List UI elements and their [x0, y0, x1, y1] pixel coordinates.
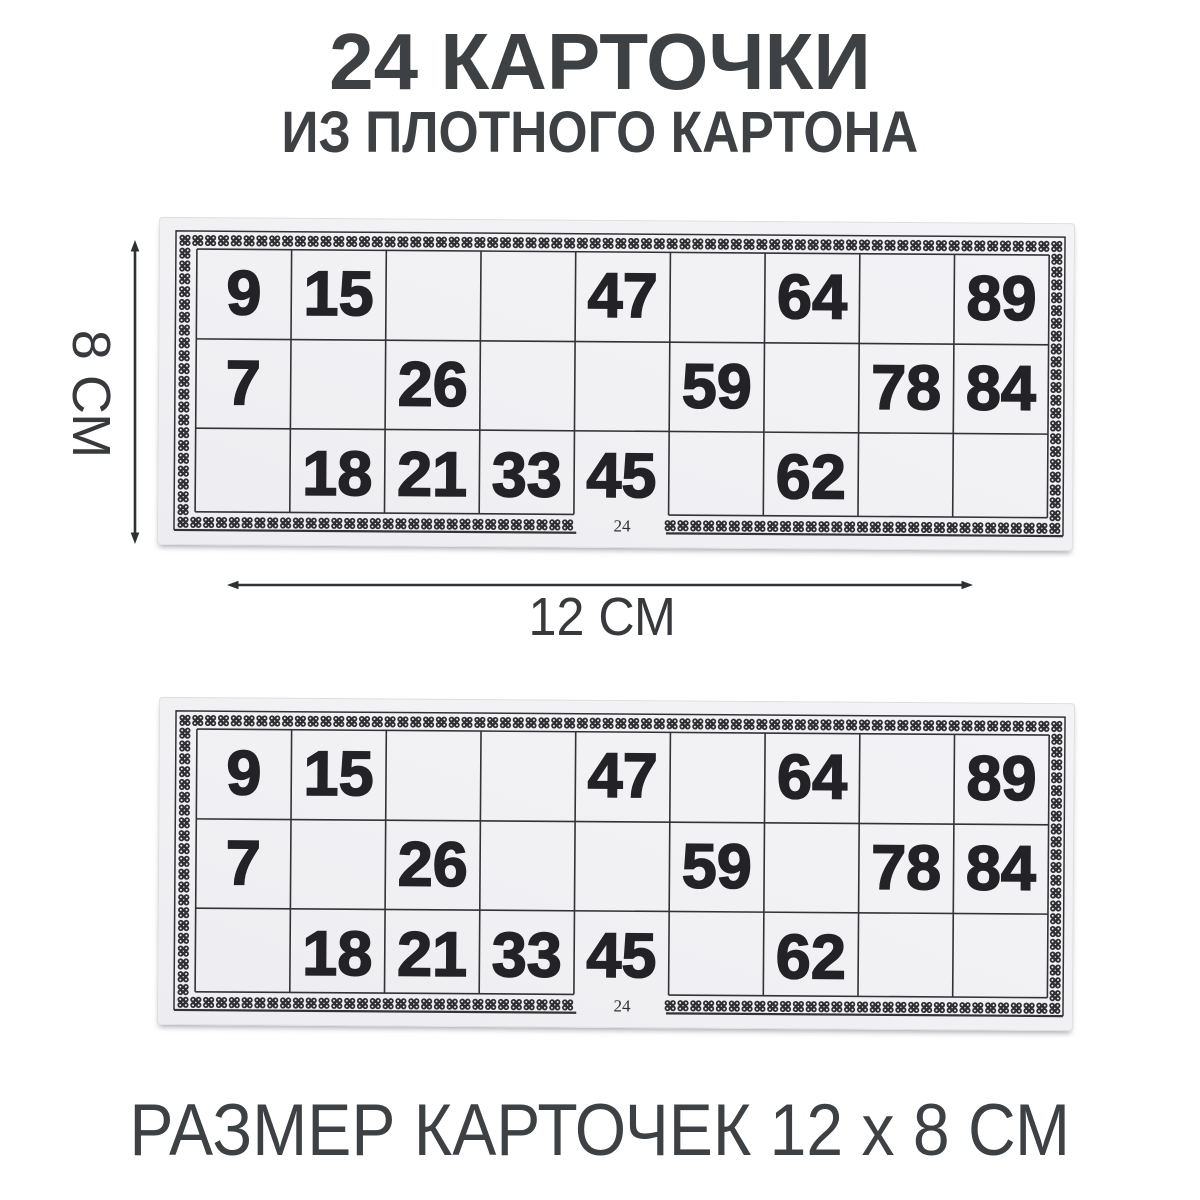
svg-text:62: 62 [776, 922, 847, 992]
svg-text:9: 9 [226, 258, 262, 328]
svg-text:47: 47 [587, 261, 658, 331]
svg-text:18: 18 [302, 919, 373, 989]
svg-text:26: 26 [398, 829, 469, 899]
svg-text:26: 26 [398, 349, 469, 419]
svg-text:24: 24 [613, 996, 631, 1015]
svg-text:62: 62 [776, 442, 847, 512]
svg-text:33: 33 [491, 920, 562, 990]
svg-text:64: 64 [777, 262, 848, 332]
svg-text:45: 45 [586, 441, 657, 511]
svg-text:24: 24 [613, 516, 631, 535]
svg-text:89: 89 [966, 743, 1037, 813]
svg-text:84: 84 [966, 353, 1037, 423]
svg-text:7: 7 [226, 828, 262, 898]
svg-text:33: 33 [491, 440, 562, 510]
svg-text:59: 59 [682, 351, 753, 421]
svg-text:59: 59 [682, 831, 753, 901]
svg-text:15: 15 [303, 739, 374, 809]
svg-text:21: 21 [397, 439, 468, 509]
svg-text:7: 7 [226, 348, 262, 418]
svg-text:78: 78 [871, 833, 942, 903]
svg-text:64: 64 [777, 742, 848, 812]
svg-text:47: 47 [587, 741, 658, 811]
svg-text:84: 84 [966, 833, 1037, 903]
svg-text:89: 89 [966, 263, 1037, 333]
svg-text:21: 21 [397, 919, 468, 989]
svg-text:45: 45 [586, 921, 657, 991]
svg-text:78: 78 [871, 353, 942, 423]
svg-text:15: 15 [303, 259, 374, 329]
svg-text:9: 9 [226, 738, 262, 808]
svg-text:18: 18 [302, 439, 373, 509]
